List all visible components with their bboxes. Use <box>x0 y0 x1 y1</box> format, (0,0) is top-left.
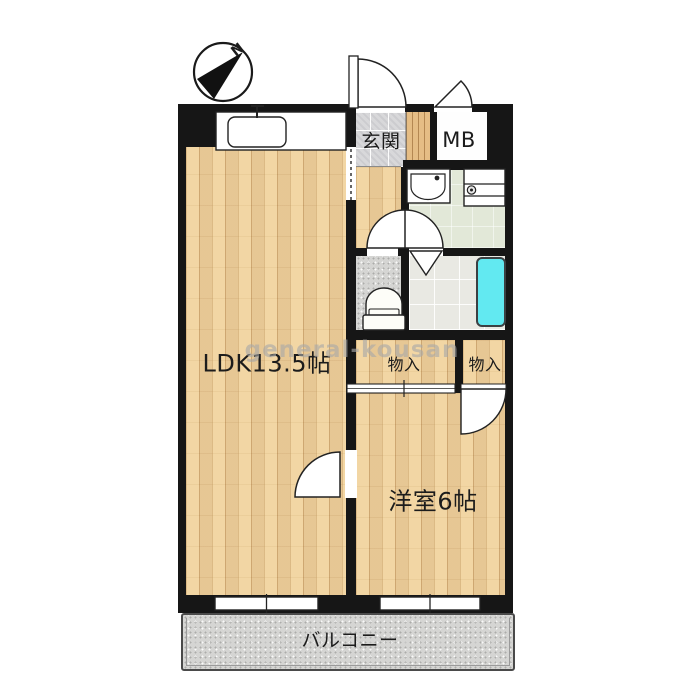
wall-hall-washroom <box>401 167 409 213</box>
wall-kitchen-corner <box>178 104 216 147</box>
wall-sanitary-top <box>346 248 505 256</box>
storage-right-label: 物入 <box>468 351 501 375</box>
entrance-label: 玄関 <box>361 127 400 154</box>
wall-top <box>178 104 513 112</box>
wall-mb-right <box>487 112 505 167</box>
balcony-label: バルコニー <box>301 626 398 653</box>
meter-box-label: MB <box>442 128 476 152</box>
bathroom-floor <box>409 256 505 330</box>
wall-toilet-bath <box>401 256 409 330</box>
wall-left <box>178 104 186 613</box>
watermark-text: general-kousan <box>245 337 460 363</box>
wall-washroom-top <box>403 160 505 170</box>
entrance-step <box>406 112 430 160</box>
entrance-door-arc <box>349 56 406 108</box>
hallway-floor <box>356 167 401 248</box>
floor-plan: LDK13.5帖 洋室6帖 玄関 MB 物入 物入 バルコニー N genera… <box>0 0 700 700</box>
washroom-floor <box>409 170 505 248</box>
compass-north-label: N <box>228 40 247 60</box>
wall-right <box>505 104 513 613</box>
western-room-label: 洋室6帖 <box>388 482 477 517</box>
wall-mb-left <box>430 112 437 167</box>
toilet-floor <box>356 256 401 330</box>
